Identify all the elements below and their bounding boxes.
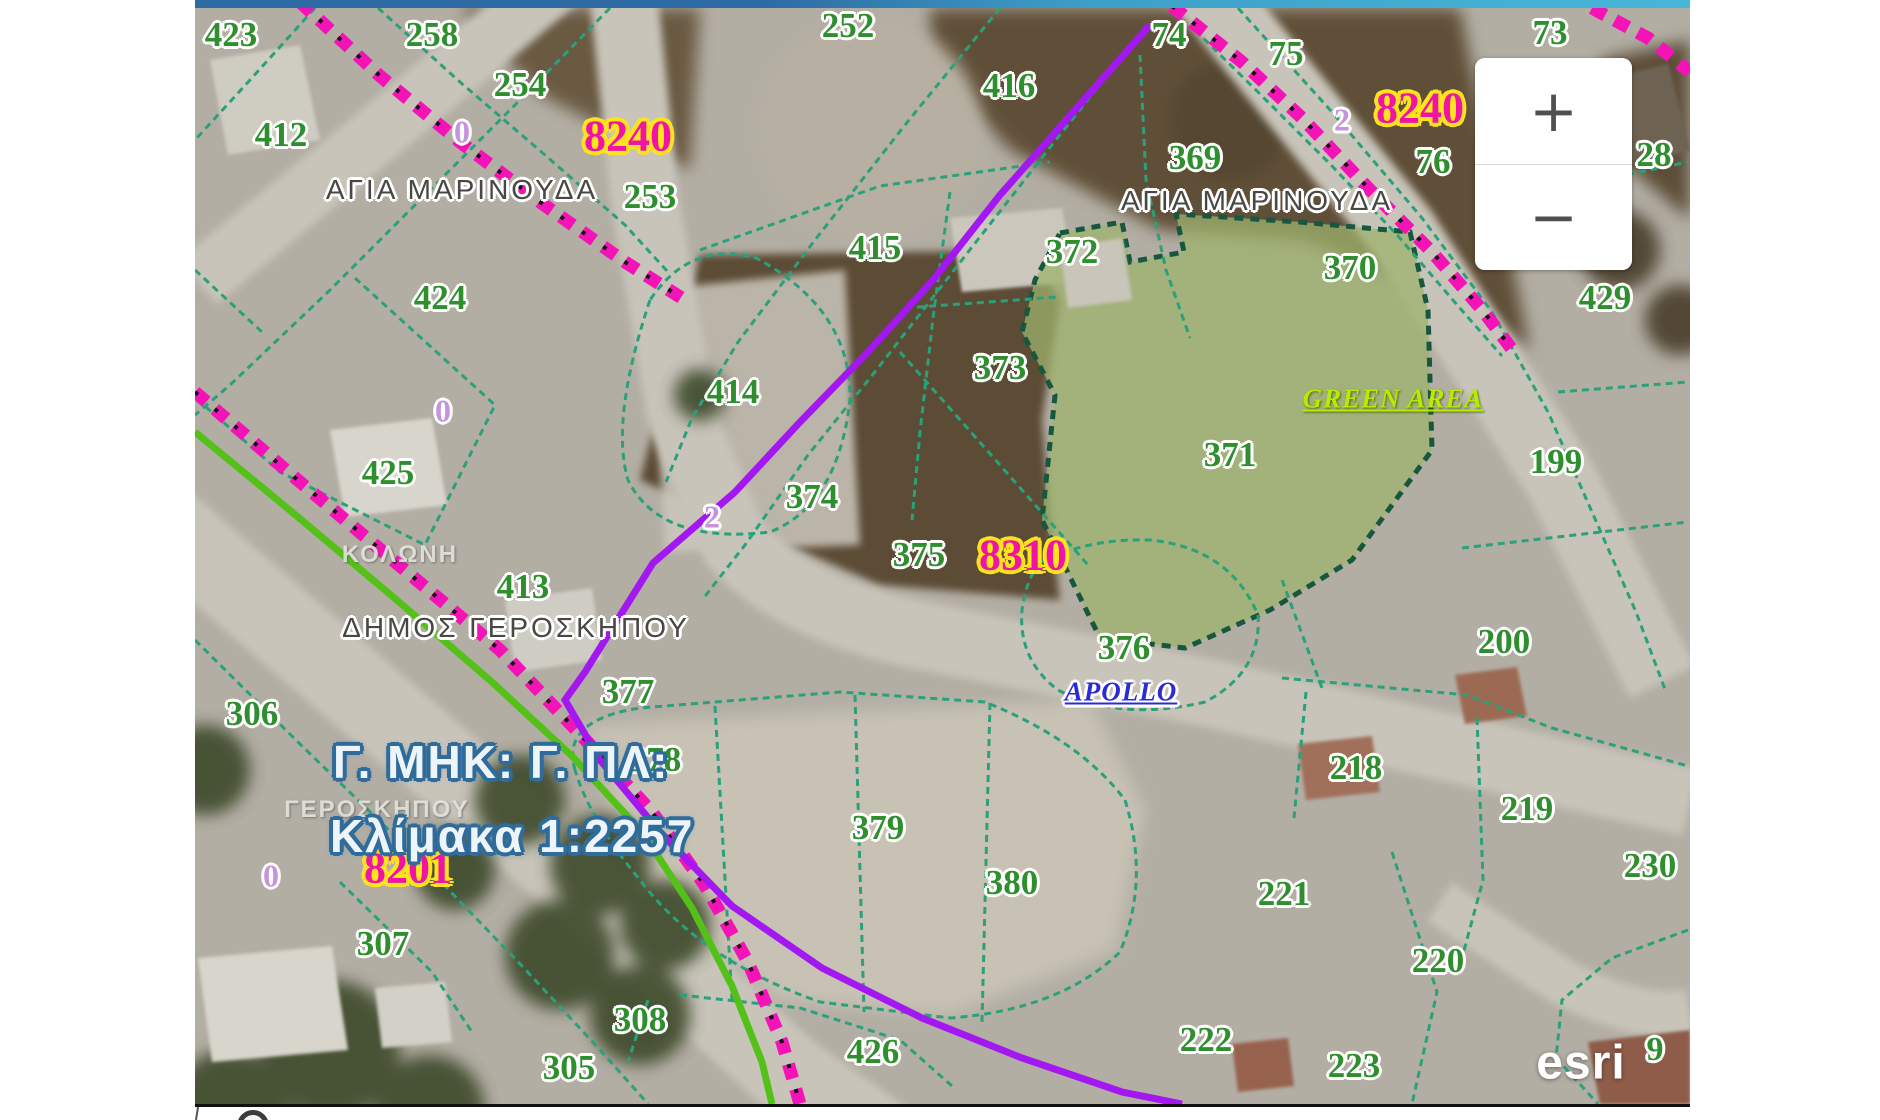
top-edge-strip [195,0,1690,8]
map-application: 4232582527475732544124163697628253415372… [0,0,1880,1120]
zoom-control-divider [1475,164,1632,165]
zoom-in-button[interactable]: + [1475,58,1632,164]
zoom-control: + − [1475,58,1632,270]
map-bottom-border [195,1104,1690,1107]
map-canvas[interactable]: 4232582527475732544124163697628253415372… [195,8,1690,1104]
green-area-notch-building [1060,238,1132,308]
zoom-out-button[interactable]: − [1475,164,1632,270]
bottom-bar [0,1104,1880,1120]
satellite-and-boundary-layer [195,8,1690,1104]
